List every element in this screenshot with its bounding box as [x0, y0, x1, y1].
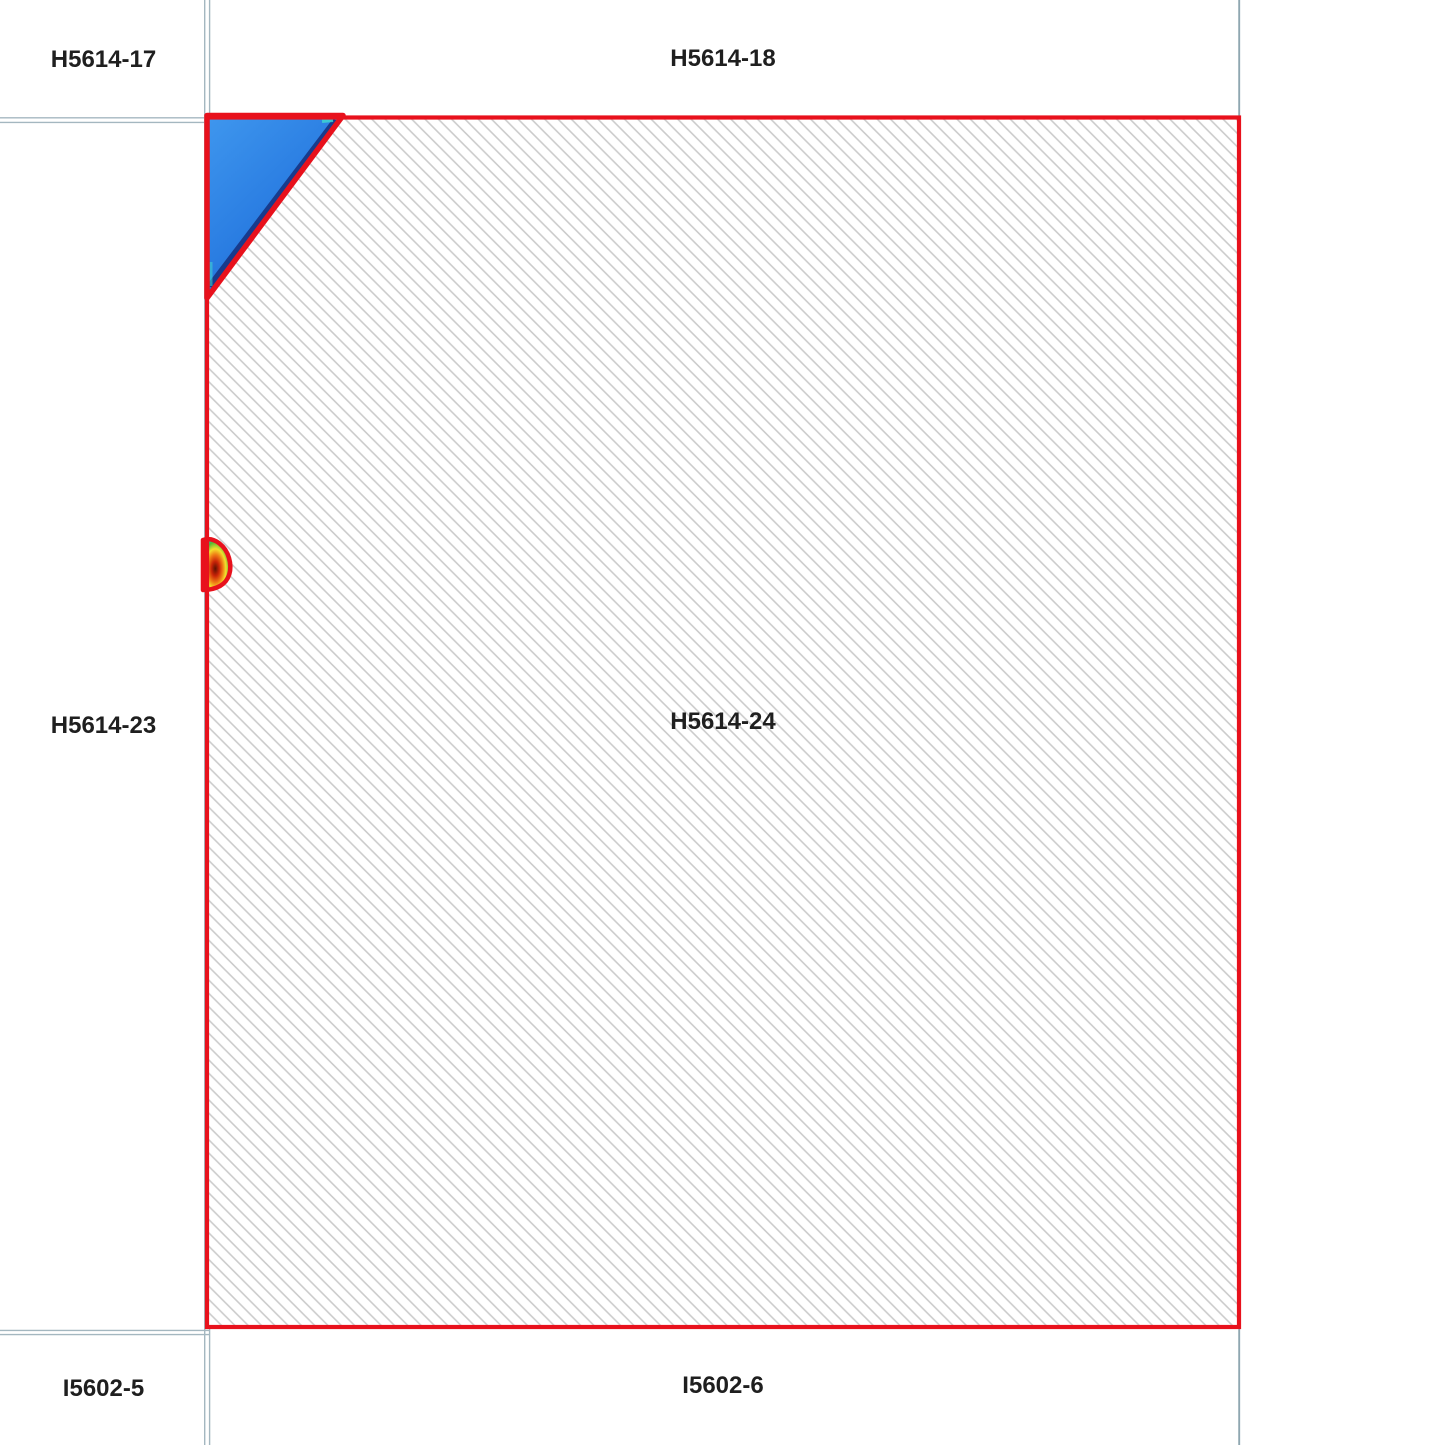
tile-cell-h5614-24-selected[interactable]: H5614-24 — [207, 117, 1239, 1327]
tile-cell-i5602-5[interactable]: I5602-5 — [0, 1332, 207, 1445]
tile-index-map: H5614-17 H5614-18 H5614-23 H5614-24 I560… — [0, 0, 1445, 1445]
tile-label-h5614-17: H5614-17 — [51, 46, 156, 74]
tile-label-h5614-24: H5614-24 — [670, 708, 775, 736]
tile-label-h5614-23: H5614-23 — [51, 712, 156, 740]
tile-cell-i5602-6[interactable]: I5602-6 — [207, 1327, 1239, 1445]
tile-label-i5602-6: I5602-6 — [682, 1372, 763, 1400]
tile-cell-h5614-23[interactable]: H5614-23 — [0, 120, 207, 1332]
tile-label-i5602-5: I5602-5 — [63, 1375, 144, 1403]
tile-label-h5614-18: H5614-18 — [670, 45, 775, 73]
tile-cell-h5614-18[interactable]: H5614-18 — [207, 0, 1239, 117]
tile-cell-h5614-17[interactable]: H5614-17 — [0, 0, 207, 120]
